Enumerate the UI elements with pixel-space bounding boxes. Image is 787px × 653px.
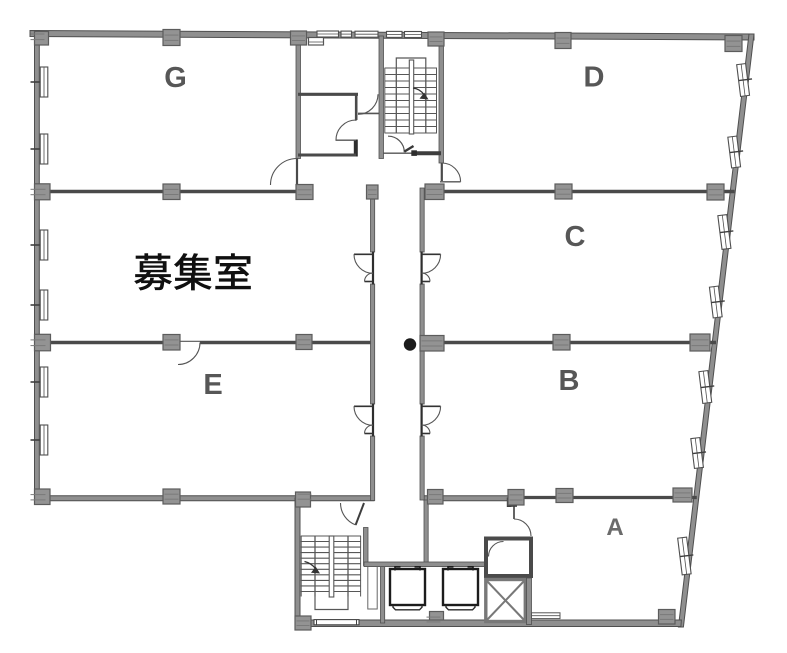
svg-text:E: E [203,369,222,401]
svg-text:C: C [565,221,586,253]
svg-text:G: G [164,62,187,94]
svg-text:D: D [584,62,605,94]
svg-text:B: B [559,365,580,397]
svg-text:A: A [606,514,623,541]
